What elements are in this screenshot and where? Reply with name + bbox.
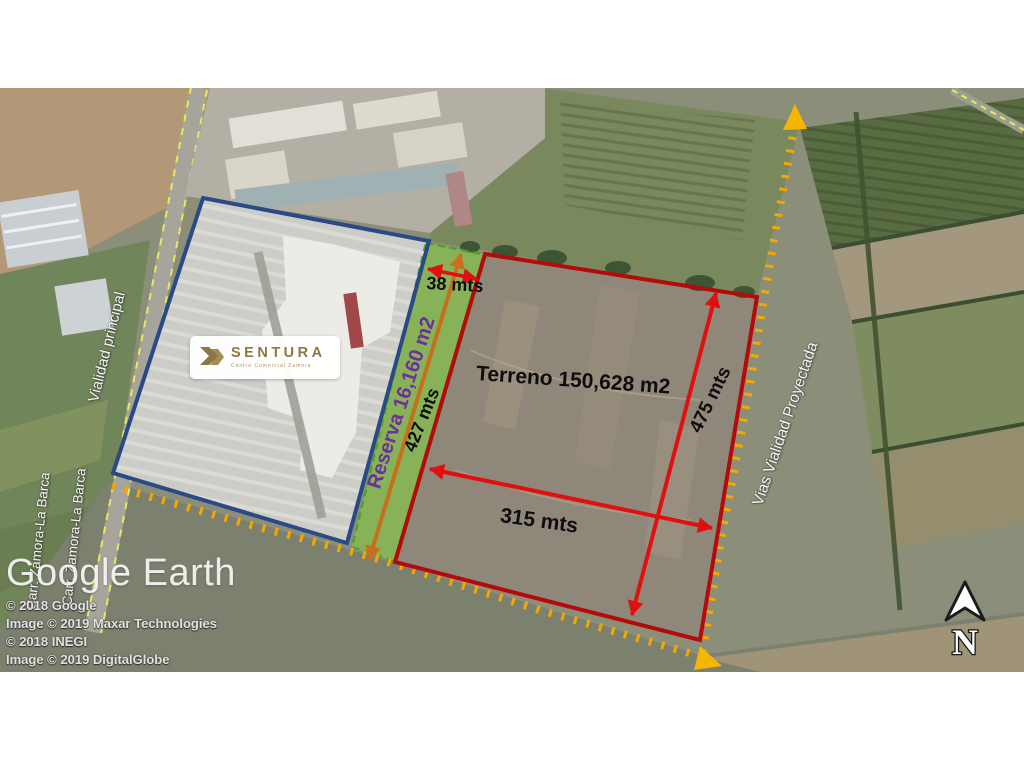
sentura-brand-tagline: Centro Comercial Zamora xyxy=(231,364,326,369)
north-letter: N xyxy=(952,622,978,662)
sentura-brand-name: SENTURA xyxy=(231,346,326,361)
credit-line: © 2018 INEGI xyxy=(6,633,217,651)
sentura-chevron-icon xyxy=(198,345,224,371)
map-credits: © 2018 Google Image © 2019 Maxar Technol… xyxy=(6,597,217,669)
greenhouses xyxy=(0,190,89,268)
credit-line: © 2018 Google xyxy=(6,597,217,615)
sentura-logo-box: SENTURA Centro Comercial Zamora xyxy=(190,336,340,379)
north-arrow-icon xyxy=(946,582,984,620)
measure-38-label: 38 mts xyxy=(426,273,484,297)
credit-line: Image © 2019 Maxar Technologies xyxy=(6,615,217,633)
credit-line: Image © 2019 DigitalGlobe xyxy=(6,651,217,669)
google-earth-watermark: Google Earth xyxy=(6,552,236,595)
north-compass: N xyxy=(934,578,996,666)
map-canvas: Terreno 150,628 m2 Reserva 16,160 m2 427… xyxy=(0,0,1024,768)
